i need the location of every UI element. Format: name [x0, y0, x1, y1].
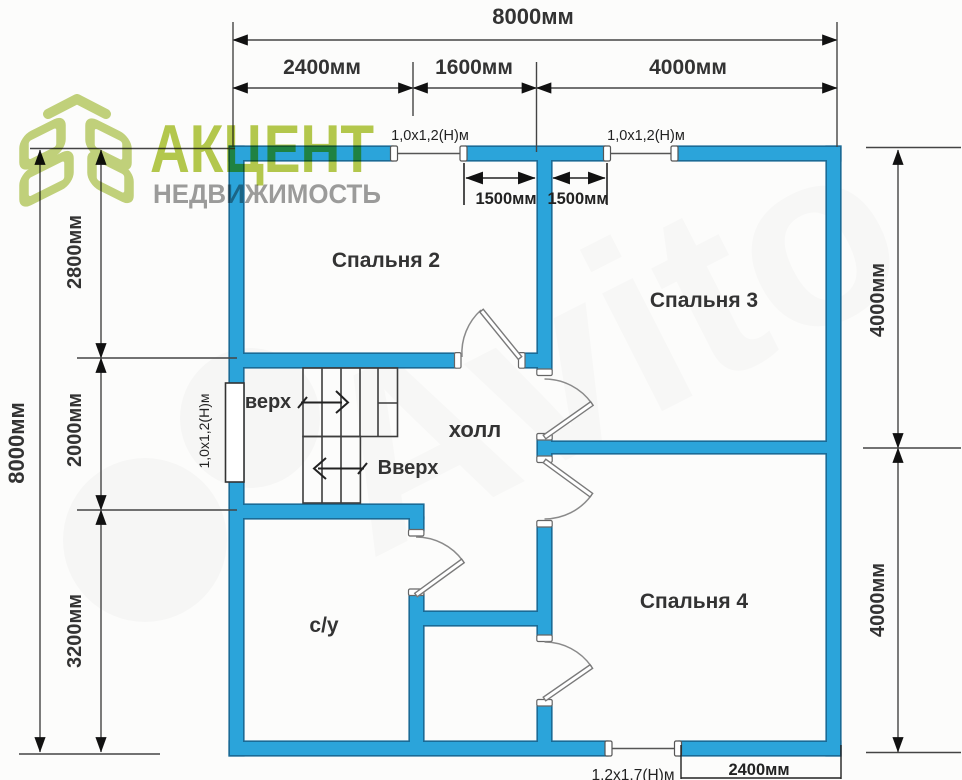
svg-text:холл: холл	[449, 417, 502, 442]
svg-text:1,0х1,2(Н)м: 1,0х1,2(Н)м	[196, 394, 212, 469]
svg-text:1,0х1,2(Н)м: 1,0х1,2(Н)м	[607, 128, 685, 144]
svg-text:НЕДВИЖИМОСТЬ: НЕДВИЖИМОСТЬ	[153, 179, 381, 209]
svg-text:2000мм: 2000мм	[64, 393, 86, 467]
svg-text:1600мм: 1600мм	[435, 56, 513, 79]
svg-text:с/у: с/у	[309, 614, 339, 637]
svg-text:4000мм: 4000мм	[867, 263, 889, 337]
svg-text:Спальня 4: Спальня 4	[640, 590, 749, 613]
svg-text:1500мм: 1500мм	[547, 190, 608, 208]
svg-text:3200мм: 3200мм	[64, 594, 86, 668]
svg-text:верх: верх	[245, 391, 291, 413]
svg-text:АКЦЕНТ: АКЦЕНТ	[150, 111, 374, 187]
svg-text:1500мм: 1500мм	[475, 190, 536, 208]
svg-text:8000мм: 8000мм	[492, 4, 574, 29]
svg-text:8000мм: 8000мм	[4, 402, 29, 484]
svg-text:Спальня 3: Спальня 3	[650, 289, 758, 312]
svg-text:1,0х1,2(Н)м: 1,0х1,2(Н)м	[391, 128, 469, 144]
svg-text:2400мм: 2400мм	[283, 56, 361, 79]
svg-text:4000мм: 4000мм	[867, 563, 889, 637]
svg-text:2400мм: 2400мм	[728, 761, 789, 779]
svg-text:Спальня 2: Спальня 2	[332, 249, 440, 272]
svg-text:1,2х1,7(Н)м: 1,2х1,7(Н)м	[591, 767, 674, 780]
svg-text:4000мм: 4000мм	[649, 56, 727, 79]
svg-text:2800мм: 2800мм	[64, 215, 86, 289]
svg-text:Вверх: Вверх	[378, 457, 439, 479]
